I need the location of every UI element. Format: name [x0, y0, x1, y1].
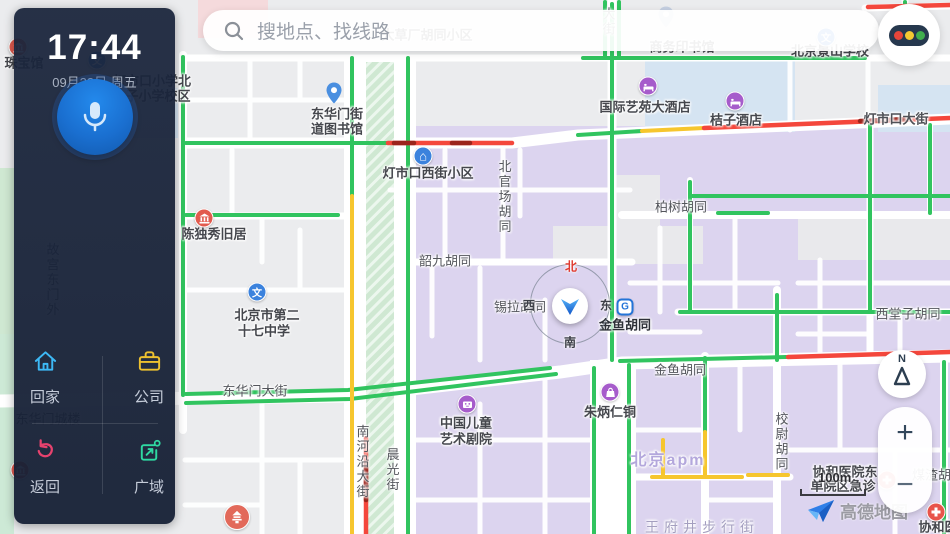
- app-window: 商务印书馆大草厂胡同小区大街北京景山学校国际艺苑大酒店桔子酒店灯市口大街灯市口西…: [0, 0, 950, 534]
- traffic-toggle-button[interactable]: [878, 4, 940, 66]
- map-label: 十七中学: [238, 325, 290, 340]
- microphone-icon: [77, 97, 113, 137]
- microphone-button[interactable]: [57, 79, 133, 155]
- map-block: [615, 175, 660, 228]
- zoom-controls: + −: [878, 407, 932, 513]
- search-icon: [223, 20, 245, 42]
- map-label: 南河沿大街: [354, 425, 369, 500]
- zoom-in-button[interactable]: +: [878, 407, 932, 459]
- hotel-icon[interactable]: [639, 77, 658, 96]
- clock: 17:44: [14, 28, 175, 68]
- traffic-yellow-dot: [905, 31, 914, 40]
- map-block-residential: [386, 126, 950, 534]
- residential-icon[interactable]: ⌂: [414, 147, 433, 166]
- go-home-button[interactable]: 回家: [5, 348, 85, 407]
- wide-area-icon: [136, 438, 163, 464]
- company-label: 公司: [109, 386, 189, 407]
- home-icon: [32, 348, 59, 374]
- map-scale-bar: [800, 489, 866, 496]
- amap-paper-plane-icon: [806, 496, 836, 524]
- map-pin-icon[interactable]: [324, 82, 345, 111]
- map-scale-label: 100m: [818, 470, 851, 485]
- traffic-green-dot: [916, 31, 925, 40]
- wide-area-label: 广域: [109, 476, 189, 497]
- divider: [102, 356, 103, 494]
- theater-icon[interactable]: [458, 395, 477, 414]
- back-button[interactable]: 返回: [5, 438, 85, 497]
- overview-button[interactable]: 广域: [109, 438, 189, 497]
- map-label: 北京市第二: [234, 309, 299, 324]
- school-icon[interactable]: 文: [248, 283, 267, 302]
- hotel-icon[interactable]: [726, 92, 745, 111]
- voice-assistant-panel: 17:44 09月23日 周五 回家 公司: [14, 8, 175, 524]
- compass-needle-icon: [891, 365, 913, 387]
- go-home-label: 回家: [5, 386, 85, 407]
- map-label: 东华门大街: [222, 385, 287, 400]
- ring-east-label: 东: [600, 297, 612, 314]
- back-label: 返回: [5, 476, 85, 497]
- map-block-school: [878, 85, 950, 132]
- ring-south-label: 南: [564, 334, 576, 351]
- map-label: 道图书馆: [311, 123, 363, 138]
- map-block-school: [645, 60, 795, 132]
- compass-n-label: N: [878, 354, 926, 365]
- subway-station-icon[interactable]: G: [617, 299, 634, 316]
- map-block: [798, 212, 950, 260]
- briefcase-icon: [136, 348, 163, 374]
- search-bar[interactable]: 搜地点、找线路: [203, 10, 879, 51]
- ring-north-label: 北: [565, 258, 577, 275]
- divider: [32, 423, 158, 424]
- map-block-park: [0, 168, 14, 334]
- compass-button[interactable]: N: [878, 350, 926, 398]
- location-arrow-icon: [558, 294, 582, 318]
- museum-icon[interactable]: [195, 209, 214, 228]
- current-location-puck: [552, 288, 588, 324]
- company-button[interactable]: 公司: [109, 348, 189, 407]
- landmark-icon[interactable]: [224, 504, 250, 530]
- traffic-light-icon: [889, 25, 929, 46]
- traffic-red-dot: [894, 31, 903, 40]
- zoom-out-button[interactable]: −: [878, 459, 932, 511]
- ring-west-label: 西: [523, 297, 535, 314]
- search-placeholder: 搜地点、找线路: [257, 17, 390, 44]
- map-label: 陈独秀旧居: [181, 228, 246, 243]
- shop-icon[interactable]: [601, 383, 620, 402]
- return-arrow-icon: [32, 438, 59, 464]
